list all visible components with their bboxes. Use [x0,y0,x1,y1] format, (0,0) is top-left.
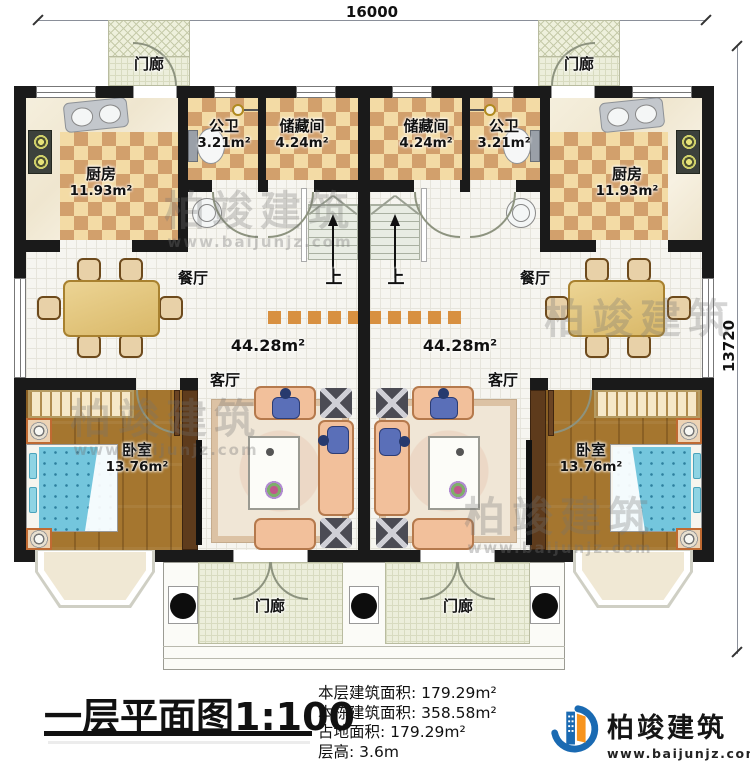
label-bedroom: 卧室13.76m² [551,442,631,476]
sink-basin [98,103,122,124]
window [14,278,26,378]
wall [668,240,702,252]
person-head [399,436,410,447]
teapot [456,448,464,456]
column [170,593,196,619]
wall [308,550,420,562]
stat-label: 本栋建筑面积: [318,704,416,722]
sofa [254,518,316,550]
stat-label: 占地面积: [318,723,385,741]
person [272,388,298,418]
bath-lamp-line [470,109,484,111]
wall-party [358,86,370,562]
label-living: 客厅 [463,372,543,390]
wall [148,550,233,562]
door-opening [133,86,177,98]
dining-table [568,280,665,337]
room-name: 卧室 [122,441,152,459]
sink-basin [606,106,630,127]
person [318,428,348,454]
window [392,86,432,98]
stat-row: 层高: 3.6m [318,743,553,763]
room-area: 4.24m² [386,136,466,152]
stat-value: 179.29m² [390,723,466,741]
label-kitchen: 厨房11.93m² [61,166,141,200]
room-area: 11.93m² [61,184,141,200]
room-name: 厨房 [86,165,116,183]
stove-burner [34,135,48,149]
room-area: 13.76m² [97,460,177,476]
label-living-area: 44.28m² [410,337,510,356]
window [296,86,336,98]
brand-text: 柏竣建筑 www.baijunjz.com [607,706,750,761]
door-opening [551,86,595,98]
title-underline [44,731,312,736]
chair [627,258,651,282]
room-name: 储藏间 [279,117,324,135]
label-bedroom: 卧室13.76m² [97,442,177,476]
label-dining: 餐厅 [495,270,575,288]
stat-label: 层高: [318,743,354,761]
window [36,86,96,98]
wall [592,378,714,390]
room-name: 卧室 [576,441,606,459]
room-area: 11.93m² [587,184,667,200]
sink-basin [70,106,94,127]
room-name: 公卫 [489,117,519,135]
person-body [272,397,300,419]
wall [14,378,136,390]
stove-burner [682,135,696,149]
teapot [266,448,274,456]
side-table [376,388,408,418]
pillow [29,453,37,479]
brand-name: 柏竣建筑 [607,706,750,745]
title-underline-light [48,741,310,744]
window [214,86,236,98]
side-table [320,388,352,418]
nightstand [676,418,702,444]
pillow [693,487,701,513]
wall-tv [530,390,546,550]
wall [370,180,414,192]
label-bath: 公卫3.21m² [464,118,544,152]
coffee-table [248,436,300,510]
stat-row: 本栋建筑面积: 358.58m² [318,704,553,724]
chair [159,296,183,320]
label-storage: 储藏间4.24m² [386,118,466,152]
nightstand [26,418,52,444]
person-body [430,397,458,419]
tv [526,440,532,545]
stat-label: 本层建筑面积: [318,684,416,702]
wash-basin-bowl [198,204,216,222]
room-area: 3.21m² [464,136,544,152]
wall [258,180,268,192]
wall [26,240,60,252]
label-porch: 门廊 [418,598,498,616]
stat-row: 占地面积: 179.29m² [318,723,553,743]
label-dining: 餐厅 [153,270,233,288]
chair [545,296,569,320]
wall [516,180,540,192]
dimension-top-label: 16000 [332,3,412,21]
stove [676,130,700,174]
column [351,593,377,619]
stair-arrow-up [390,214,400,226]
door-leaf [548,390,554,436]
column [532,593,558,619]
stove-burner [682,155,696,169]
stove-burner [34,155,48,169]
label-stairs-up: 上 [382,268,410,288]
room-name: 公卫 [209,117,239,135]
chair [119,258,143,282]
person-head [318,435,329,446]
dining-table [63,280,160,337]
door-opening [233,550,308,562]
person [430,388,456,418]
room-area: 13.76m² [551,460,631,476]
wall [495,550,580,562]
tv [196,440,202,545]
brand-logo-block: 柏竣建筑 www.baijunjz.com [545,700,745,764]
room-area: 4.24m² [262,136,342,152]
door-leaf [174,390,180,436]
label-porch: 门廊 [109,56,189,74]
wall [188,180,212,192]
room-name: 储藏间 [403,117,448,135]
stat-value: 358.58m² [421,704,497,722]
stair-arrow-up [328,214,338,226]
person-head [280,388,291,399]
coffee-table [428,436,480,510]
flower-vase [264,480,284,500]
chair [37,296,61,320]
bath-lamp [484,104,496,116]
wash-basin-bowl [512,204,530,222]
window [492,86,514,98]
label-porch: 门廊 [539,56,619,74]
sink-basin [634,103,658,124]
floor-plan-sheet: 16000 13720 [0,0,750,776]
chair [627,334,651,358]
window [702,278,714,378]
step-line [163,658,565,659]
chair [77,334,101,358]
person-body [379,428,401,456]
wardrobe [594,390,700,418]
person-head [438,388,449,399]
label-living: 客厅 [185,372,265,390]
step-line [163,646,565,647]
stat-value: 179.29m² [421,684,497,702]
bath-lamp [232,104,244,116]
person-body [327,426,349,454]
wall [132,240,188,252]
chair [667,296,691,320]
chair [585,258,609,282]
stove [28,130,52,174]
nightstand [26,528,52,550]
pillow [693,453,701,479]
label-storage: 储藏间4.24m² [262,118,342,152]
label-living-area: 44.28m² [218,337,318,356]
wall [460,180,470,192]
label-kitchen: 厨房11.93m² [587,166,667,200]
label-stairs-up: 上 [320,268,348,288]
side-table [320,518,352,548]
flower-vase [448,480,468,500]
sofa [412,518,474,550]
label-porch: 门廊 [230,598,310,616]
wall [314,180,358,192]
chair [77,258,101,282]
stat-value: 3.6m [359,743,399,761]
chair [585,334,609,358]
label-bath: 公卫3.21m² [184,118,264,152]
window [632,86,692,98]
bath-lamp-line [244,109,258,111]
door-opening [420,550,495,562]
stat-row: 本层建筑面积: 179.29m² [318,684,553,704]
room-name: 厨房 [612,165,642,183]
wardrobe [28,390,134,418]
nightstand [676,528,702,550]
person [380,428,410,454]
pillow [29,487,37,513]
area-stats: 本层建筑面积: 179.29m² 本栋建筑面积: 358.58m² 占地面积: … [318,684,553,762]
side-table [376,518,408,548]
brand-building-icon [545,700,603,760]
dimension-right-label: 13720 [720,306,738,386]
room-area: 3.21m² [184,136,264,152]
wall [540,240,596,252]
chair [119,334,143,358]
brand-site: www.baijunjz.com [607,746,750,761]
